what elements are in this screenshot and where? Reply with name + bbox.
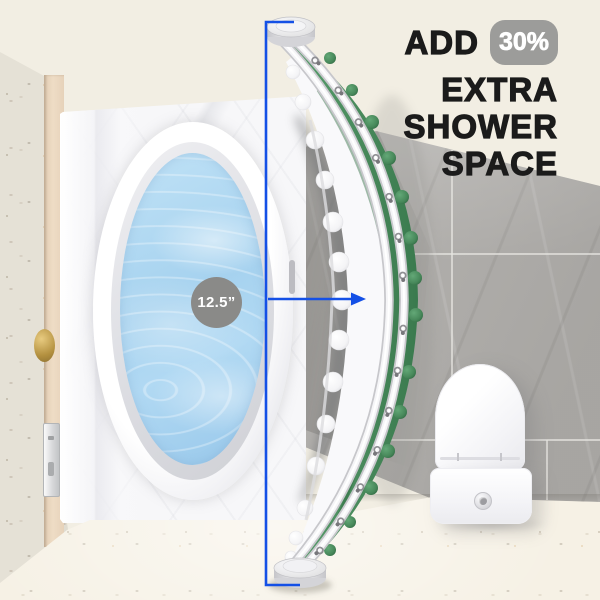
door-knob — [34, 329, 55, 362]
tile-seam — [546, 440, 548, 500]
toilet-lid — [435, 364, 525, 470]
door-latch-plate — [43, 423, 60, 497]
tile-seam — [412, 253, 600, 255]
bathtub-overflow-slot — [289, 260, 295, 294]
latch-slot — [48, 462, 54, 476]
measurement-label: 12.5” — [197, 294, 235, 311]
toilet-lid-seam — [440, 457, 520, 460]
headline-space: SPACE — [258, 145, 558, 182]
toilet-hinge-mark — [457, 453, 459, 461]
latch-slot — [48, 436, 54, 440]
curved-shower-rod-infographic: 12.5” ADD 30% EXTRA SHOWER SPACE — [0, 0, 600, 600]
headline-add: ADD — [404, 24, 479, 61]
headline-shower: SHOWER — [258, 108, 558, 145]
headline: ADD 30% EXTRA SHOWER SPACE — [258, 20, 558, 182]
measurement-badge: 12.5” — [191, 277, 242, 328]
headline-line1: ADD 30% — [258, 20, 558, 65]
headline-extra: EXTRA — [258, 71, 558, 108]
percent-badge: 30% — [490, 20, 558, 65]
flush-button-center — [479, 497, 487, 505]
toilet-hinge-mark — [500, 453, 502, 461]
